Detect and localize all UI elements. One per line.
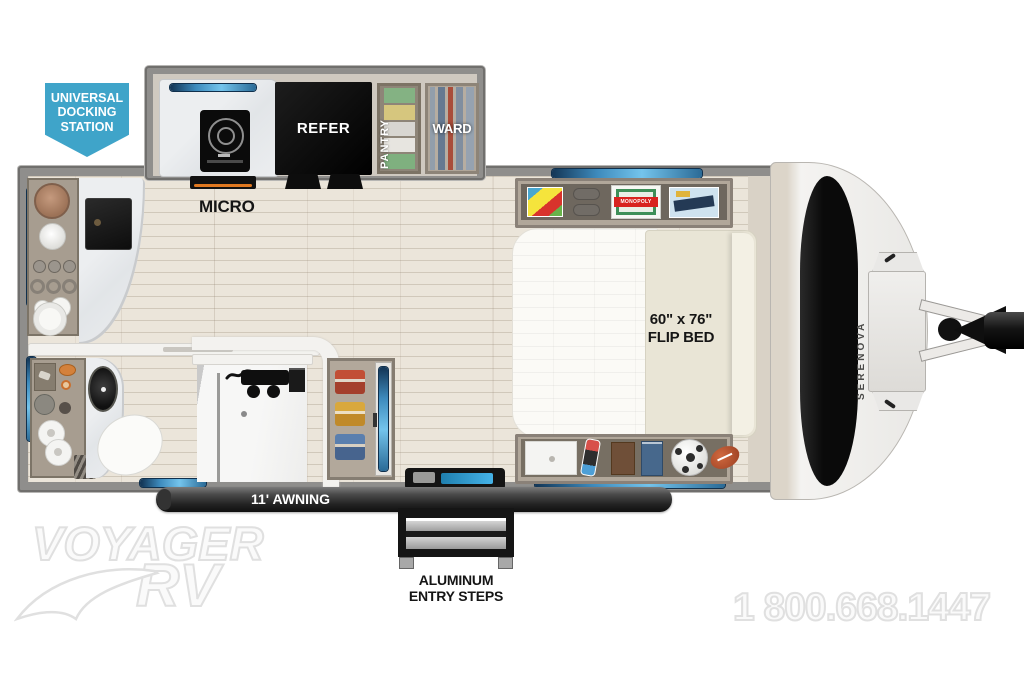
game-box-drawing-banner [673,195,714,211]
badge-line-3: STATION [45,120,129,134]
shower-floor [197,365,307,482]
kitchen-sink [85,198,132,250]
pantry-cabinet: PANTRY [377,83,421,174]
badge-line-1: UNIVERSAL [45,91,129,105]
game-box-drawing [669,187,719,218]
shower-knob-2 [267,385,280,398]
game-controller-1 [573,188,600,200]
top-right-window [552,169,702,178]
shower-caddy [289,368,305,392]
large-plate [33,302,67,336]
shower-fixture [241,370,289,385]
knob-2 [48,260,61,273]
refer-vent-right [327,174,363,189]
monopoly-banner: MONOPOLY [614,197,658,207]
entry-steps-label-line1: ALUMINUM [394,572,518,588]
book-blue [641,441,663,476]
hitch-coupler-cylinder [984,312,1024,349]
dark-accessory [59,402,71,414]
soccer-pentagon-2 [675,448,682,455]
step-tread-2 [406,537,506,549]
entry-mat-gray [413,472,435,483]
ward-label: WARD [425,121,479,136]
sink-drain [94,219,101,226]
phone-number: 1 800.668.1447 [733,588,990,627]
steps-bottom-rail [398,549,514,557]
bathroom-sink-drain [101,387,106,392]
microwave [190,176,256,189]
brown-bowl [34,183,70,219]
gray-jar [34,394,55,415]
wardrobe-top-cabinet: WARD [425,83,479,174]
book-brown [611,442,635,475]
soccer-pentagon-4 [682,466,689,473]
entry-mat-blue [441,473,493,484]
soap-bar [38,370,51,380]
soccer-pentagon-1 [686,453,695,462]
cooktop-display [218,154,230,157]
soccer-ball [671,439,708,476]
laptop [525,441,577,475]
orange-jar [61,380,71,390]
folded-clothes-yellow [335,402,365,426]
flip-bed-label: 60" x 76" FLIP BED [616,311,746,347]
soccer-pentagon-5 [697,463,703,469]
cooktop-controls [207,160,243,163]
flip-bed-size: 60" x 76" [616,311,746,329]
step-tread-1 [406,521,506,531]
universal-docking-station-badge: UNIVERSAL DOCKING STATION [45,83,129,157]
awning-end-cap-left [158,489,171,510]
orange-soap-dish [59,364,76,376]
toilet-paper-core-2 [54,448,62,456]
front-cap-window-band [800,176,858,486]
game-controller-2 [573,204,600,216]
wardrobe-door [375,362,392,476]
entry-steps [398,508,514,570]
micro-label: MICRO [199,197,255,217]
awning-label: 11' AWNING [251,491,330,507]
kitchen-slide-walls: REFER PANTRY WARD [145,66,485,180]
shower-inner-bar [192,354,313,365]
container-ring-1 [30,279,45,294]
flip-bed-name: FLIP BED [616,329,746,347]
cooktop [200,110,250,172]
game-box-twister [527,187,563,217]
games-shelf-interior: MONOPOLY [521,184,727,220]
badge-line-2: DOCKING [45,105,129,119]
shower-knob-1 [247,385,260,398]
entry-steps-label-line2: ENTRY STEPS [394,588,518,604]
propane-cover-top-flap [872,252,924,272]
laptop-logo [549,456,555,462]
entry-steps-label: ALUMINUM ENTRY STEPS [394,572,518,604]
bathroom-sink [88,366,118,412]
steps-top-rail [398,508,514,518]
kitchen-dish-cabinet [27,178,79,336]
knob-1 [33,260,46,273]
shower-door-handle [241,411,247,417]
refer-label: REFER [275,120,372,137]
wardrobe-door-handle [373,413,377,427]
under-bed-storage-shelf [515,434,733,484]
step-leg-right [498,557,513,569]
kitchen-counter [160,80,278,176]
game-console [580,438,601,477]
toilet-paper-roll-2 [45,439,72,466]
kitchen-window [170,84,256,91]
toiletry-tray [34,363,56,391]
game-box-drawing-art [676,191,690,197]
cooktop-burner-center [217,127,235,145]
microwave-handle [194,184,252,187]
wardrobe-door-window [379,367,388,471]
overhead-games-shelf: MONOPOLY [515,178,733,228]
step-leg-left [399,557,414,569]
football-laces [717,453,732,462]
lower-wardrobe [327,358,395,480]
propane-cover-box [868,271,926,392]
game-box-monopoly: MONOPOLY [611,185,661,219]
soccer-pentagon-3 [696,445,703,452]
container-ring-3 [62,279,77,294]
folded-clothes-red [335,370,365,394]
propane-cover-bottom-flap [872,391,924,411]
refrigerator: REFER [275,82,372,175]
knob-3 [63,260,76,273]
voyager-swoosh-logo [14,558,164,624]
toilet-paper-core-1 [47,429,55,437]
refer-vent-left [285,174,321,189]
shower-door-edge [217,373,220,482]
storage-shelf-interior [521,439,727,477]
container-ring-2 [46,279,61,294]
folded-clothes-blue [335,434,365,460]
model-name-vertical: SERENOVA [856,266,867,400]
floorplan-canvas: VOYAGER RV 1 800.668.1447 REFER [0,0,1024,683]
pantry-label: PANTRY [379,89,391,169]
white-bowl [39,223,66,250]
